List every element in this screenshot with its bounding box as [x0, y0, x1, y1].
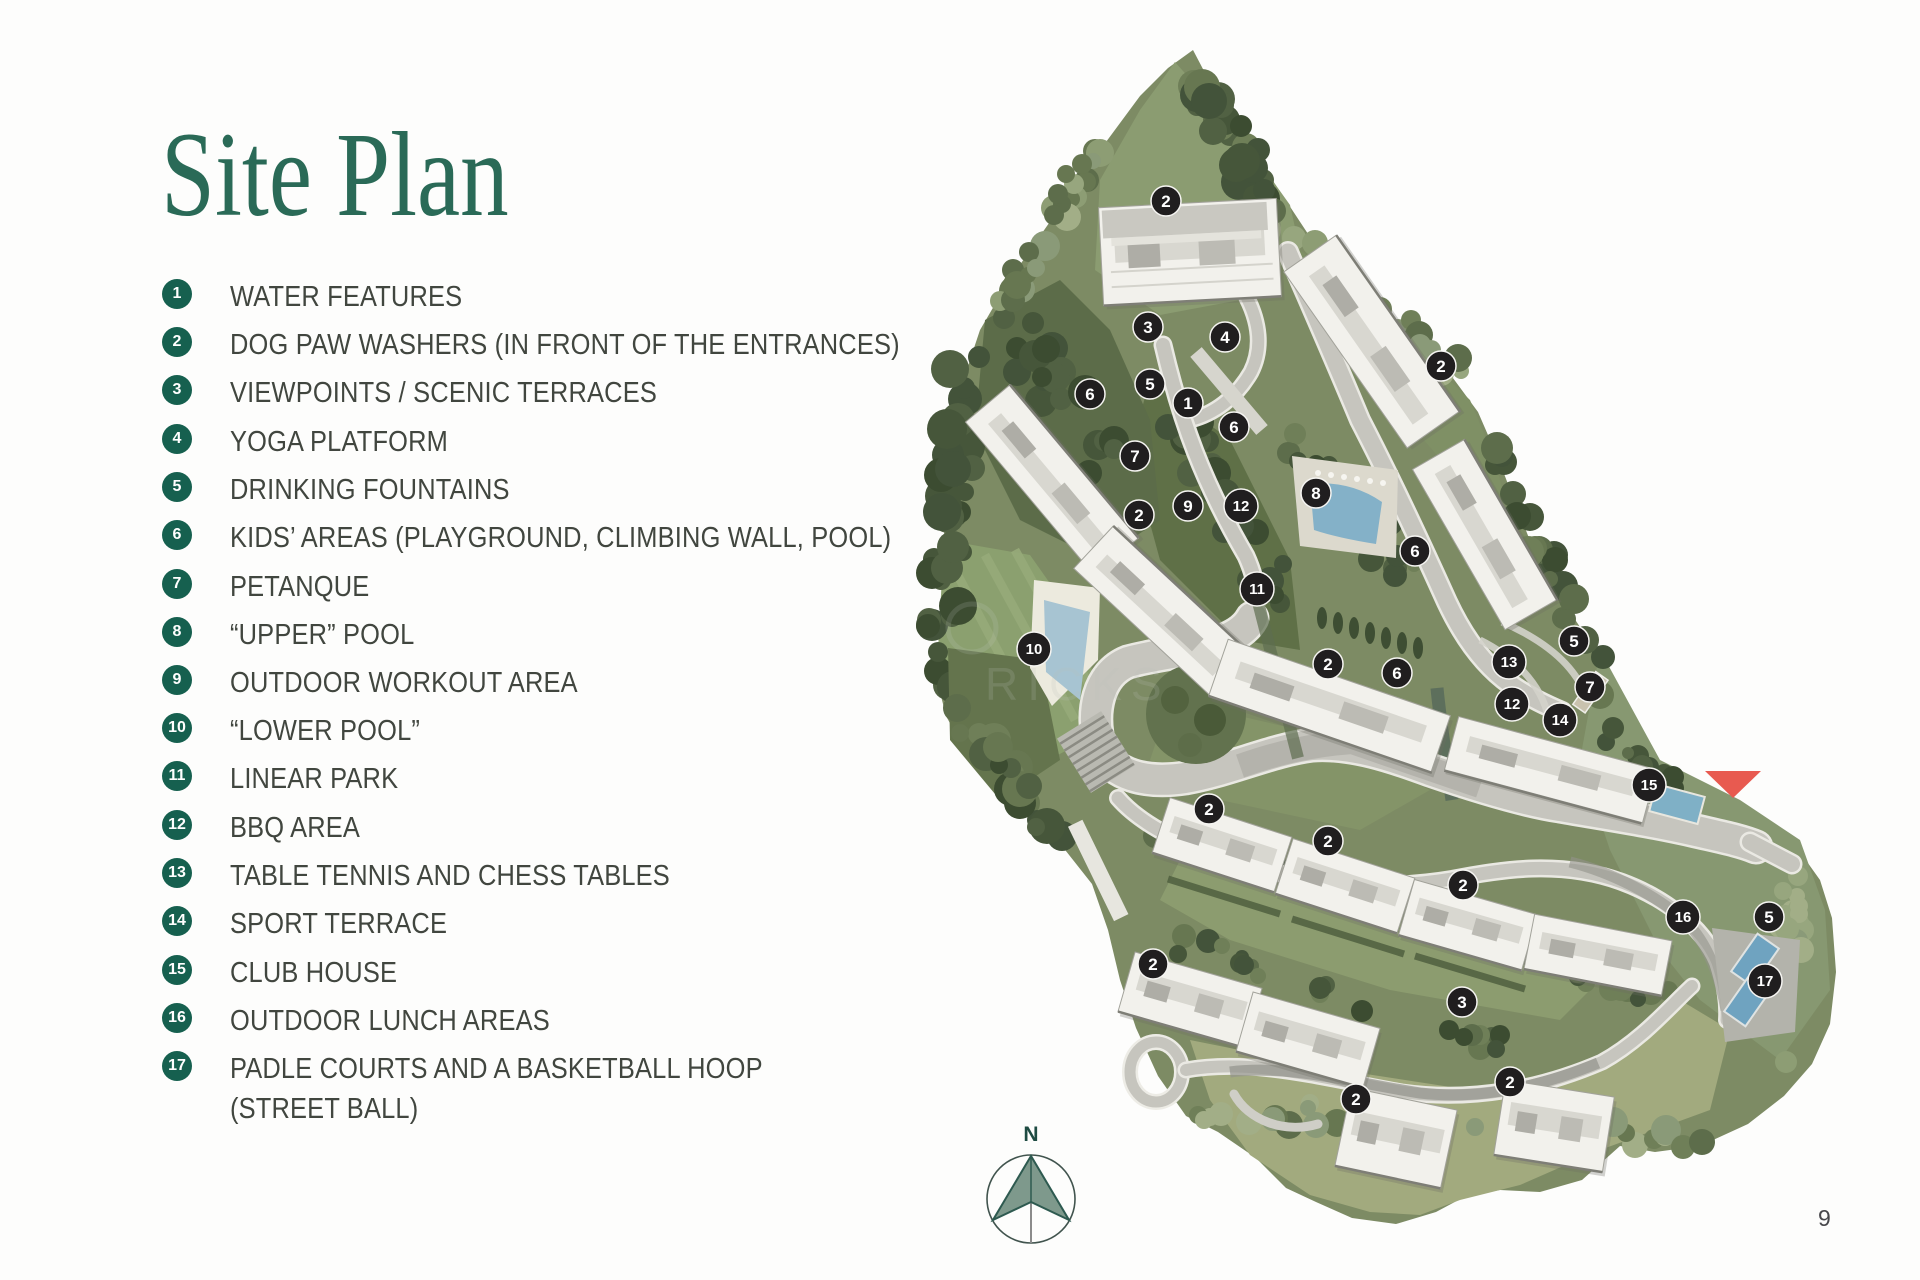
svg-text:8: 8 [1311, 484, 1320, 503]
svg-text:2: 2 [1134, 506, 1143, 525]
svg-text:2: 2 [1323, 832, 1332, 851]
svg-text:6: 6 [1085, 385, 1094, 404]
svg-text:5: 5 [1569, 632, 1578, 651]
svg-text:6: 6 [1229, 418, 1238, 437]
svg-text:4: 4 [1220, 328, 1230, 347]
svg-text:7: 7 [1130, 447, 1139, 466]
svg-text:2: 2 [1458, 876, 1467, 895]
svg-text:6: 6 [1410, 542, 1419, 561]
svg-text:10: 10 [1026, 641, 1043, 658]
svg-text:5: 5 [1764, 908, 1773, 927]
svg-text:17: 17 [1757, 973, 1774, 990]
svg-text:13: 13 [1501, 654, 1518, 671]
svg-text:9: 9 [1818, 1205, 1831, 1231]
svg-text:RICKS: RICKS [985, 658, 1171, 710]
svg-text:9: 9 [1183, 497, 1192, 516]
svg-text:2: 2 [1204, 800, 1213, 819]
svg-text:14: 14 [1552, 712, 1569, 729]
svg-text:1: 1 [1183, 394, 1192, 413]
svg-text:3: 3 [1143, 318, 1152, 337]
svg-text:2: 2 [1505, 1073, 1514, 1092]
svg-text:N: N [1023, 1123, 1038, 1146]
svg-text:2: 2 [1323, 655, 1332, 674]
svg-text:5: 5 [1145, 375, 1154, 394]
svg-text:7: 7 [1585, 678, 1594, 697]
svg-text:2: 2 [1148, 955, 1157, 974]
svg-text:12: 12 [1233, 498, 1250, 515]
svg-text:6: 6 [1392, 664, 1401, 683]
svg-text:15: 15 [1641, 777, 1658, 794]
svg-text:11: 11 [1249, 581, 1265, 598]
svg-text:2: 2 [1436, 357, 1445, 376]
svg-text:3: 3 [1457, 993, 1466, 1012]
svg-text:2: 2 [1161, 192, 1170, 211]
svg-text:12: 12 [1504, 696, 1521, 713]
svg-text:16: 16 [1675, 909, 1692, 926]
svg-text:2: 2 [1351, 1090, 1360, 1109]
